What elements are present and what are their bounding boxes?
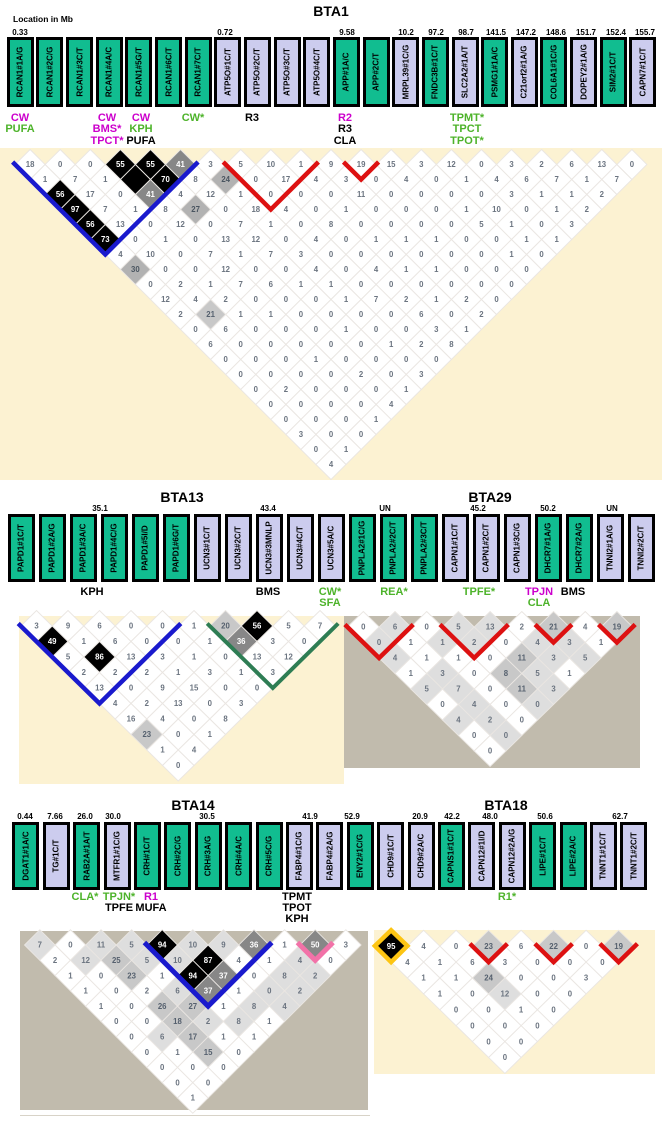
svg-text:1: 1 [438,958,443,967]
svg-text:3: 3 [584,974,589,983]
svg-text:0: 0 [503,1021,508,1030]
svg-text:3: 3 [503,958,508,967]
svg-text:0: 0 [503,1053,508,1062]
svg-text:0: 0 [535,958,540,967]
svg-text:1: 1 [519,1006,524,1015]
svg-text:0: 0 [519,974,524,983]
svg-text:0: 0 [454,1006,459,1015]
svg-text:0: 0 [551,974,556,983]
svg-text:0: 0 [470,1021,475,1030]
svg-text:0: 0 [519,1037,524,1046]
svg-text:12: 12 [501,990,510,999]
svg-text:0: 0 [486,1006,491,1015]
svg-text:0: 0 [470,990,475,999]
svg-text:0: 0 [535,990,540,999]
svg-text:0: 0 [568,990,573,999]
svg-text:1: 1 [438,990,443,999]
svg-text:6: 6 [519,942,524,951]
svg-text:22: 22 [549,942,558,951]
svg-text:24: 24 [484,974,493,983]
svg-text:0: 0 [551,1006,556,1015]
svg-text:4: 4 [405,958,410,967]
svg-text:1: 1 [421,974,426,983]
svg-text:0: 0 [454,942,459,951]
svg-text:0: 0 [486,1037,491,1046]
svg-text:0: 0 [584,942,589,951]
svg-text:0: 0 [600,958,605,967]
svg-text:4: 4 [421,942,426,951]
svg-text:6: 6 [470,958,475,967]
svg-text:0: 0 [535,1021,540,1030]
svg-text:23: 23 [484,942,493,951]
svg-text:1: 1 [454,974,459,983]
svg-text:95: 95 [387,942,396,951]
svg-text:0: 0 [568,958,573,967]
svg-text:19: 19 [614,942,623,951]
